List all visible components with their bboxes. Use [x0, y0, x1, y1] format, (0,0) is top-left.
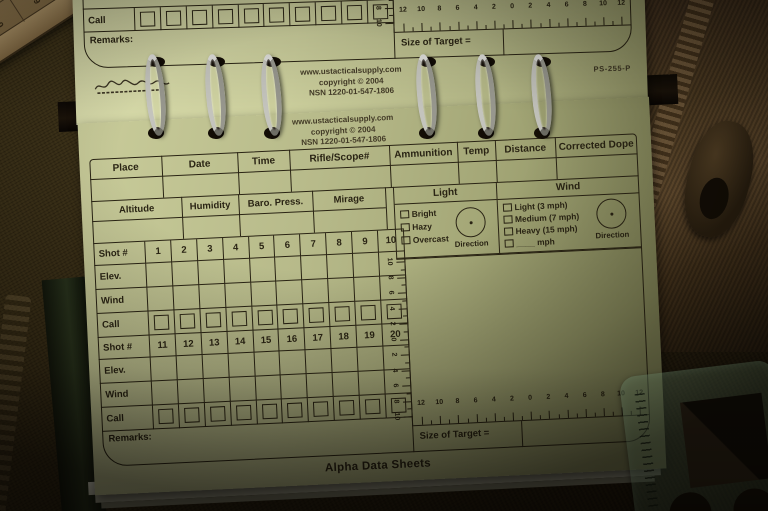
wind-option: ____ mph	[504, 236, 555, 248]
ruler-tick	[613, 411, 614, 416]
ruler-tick	[513, 20, 514, 28]
ruler-tick	[531, 412, 532, 420]
ruler-number: 8	[374, 1, 381, 13]
protractor-template	[619, 359, 768, 511]
shot-number-cell: 14	[227, 331, 254, 354]
light-option: Bright	[400, 208, 437, 220]
ruler-tick	[558, 414, 559, 419]
photo-scene: 92.82.22.02.42.62426283032345.96.47.07.9…	[0, 0, 768, 511]
call-checkbox	[283, 309, 299, 325]
ruler-number: 2	[389, 317, 397, 329]
call-checkbox	[166, 10, 181, 25]
checkbox	[400, 210, 409, 219]
call-checkbox	[140, 11, 155, 26]
call-cell	[226, 307, 253, 332]
call-cell	[212, 5, 239, 29]
shot-number-cell: 4	[223, 237, 250, 260]
part-number: PS-255-P	[545, 63, 631, 75]
call-checkbox	[179, 313, 195, 329]
ruler-tick	[467, 25, 468, 30]
ruler-tick	[440, 22, 441, 30]
ruler-tick	[402, 370, 410, 371]
ruler-number: 4	[558, 393, 574, 401]
ruler-tick	[504, 416, 505, 421]
protractor-window	[680, 393, 768, 488]
ruler-number: 10	[386, 255, 394, 267]
ruler-number: 0	[522, 394, 538, 402]
ruler-number: 12	[413, 399, 429, 407]
shot-entry-cell	[250, 258, 277, 283]
ruler-tick	[389, 15, 394, 16]
shot-number-cell: 13	[201, 332, 228, 355]
shot-row-label: Call	[97, 312, 150, 338]
ruler-tick	[385, 23, 393, 24]
shot-row-label: Elev.	[94, 264, 147, 290]
env-column-label: Humidity	[181, 194, 239, 217]
ruler-tick	[403, 331, 408, 332]
shot-number-cell: 10	[378, 229, 405, 252]
shot-number-cell: 6	[275, 234, 302, 257]
shot-number-cell: 17	[305, 327, 332, 350]
ruler-tick	[431, 420, 432, 425]
ruler-tick	[407, 409, 412, 410]
shot-row-label: Shot #	[98, 336, 151, 360]
shot-entry-cell	[277, 280, 304, 305]
ruler-number: 6	[559, 1, 575, 8]
checkbox	[503, 215, 512, 224]
shot-entry-cell	[172, 261, 199, 286]
call-cell	[264, 3, 291, 27]
ruler-tick	[494, 413, 495, 421]
shot-row-label: Elev.	[99, 357, 152, 383]
call-cell	[252, 305, 279, 330]
call-checkbox	[217, 8, 232, 23]
shot-entry-cell	[178, 379, 205, 404]
ruler-tick	[401, 354, 409, 355]
shot-number-cell: 9	[352, 231, 379, 254]
call-checkbox	[295, 6, 310, 21]
ruler-tick	[595, 412, 596, 417]
shot-entry-cell	[333, 372, 360, 397]
call-cell	[304, 303, 331, 328]
ruler-tick	[513, 412, 514, 420]
direction-circle	[596, 198, 627, 229]
ruler-tick	[405, 378, 410, 379]
ruler-tick	[404, 416, 412, 417]
call-checkbox	[287, 402, 303, 418]
ruler-number: 2	[486, 3, 502, 10]
call-checkbox	[365, 399, 381, 415]
remarks-label: Remarks:	[90, 34, 134, 46]
wind-option-label: Heavy (15 mph)	[515, 223, 577, 236]
ruler-number: 6	[577, 392, 593, 400]
protractor-ruler-ticks	[635, 393, 661, 511]
wind-option-label: ____ mph	[516, 236, 555, 248]
ruler-tick	[613, 20, 614, 25]
shot-entry-cell	[281, 374, 308, 399]
shot-entry-cell	[177, 355, 204, 380]
ruler-number: 4	[468, 4, 484, 11]
protractor-hole	[667, 490, 714, 511]
ruler-tick	[402, 300, 407, 301]
shot-entry-cell	[306, 349, 333, 374]
shot-number-cell: 7	[300, 233, 327, 256]
ruler-number: 10	[393, 410, 401, 422]
call-checkbox	[335, 306, 351, 322]
ruler-number: 6	[391, 379, 399, 391]
size-of-target-label: Size of Target =	[401, 35, 471, 48]
shot-entry-cell	[354, 277, 381, 302]
call-checkbox	[313, 401, 329, 417]
call-cell	[200, 308, 227, 333]
ruler-tick	[531, 20, 532, 28]
light-option-label: Hazy	[412, 221, 432, 232]
shot-entry-cell	[301, 255, 328, 280]
ruler-tick	[404, 347, 409, 348]
ruler-number: 6	[449, 5, 465, 12]
ruler-tick	[595, 21, 596, 26]
shot-entry-cell	[303, 279, 330, 304]
wind-panel: Wind Light (3 mph) Medium (7 mph) Heavy …	[496, 175, 642, 254]
ruler-tick	[494, 21, 495, 29]
shot-entry-cell	[198, 260, 225, 285]
direction-label: Direction	[581, 229, 643, 241]
ruler-number: 0	[504, 3, 520, 10]
ruler-tick	[398, 292, 406, 293]
ruler-number: 2	[540, 393, 556, 401]
light-panel-title: Light	[394, 182, 497, 205]
direction-circle	[455, 207, 486, 238]
ruler-tick	[402, 316, 407, 317]
call-cell	[290, 2, 317, 26]
zipper-pull	[675, 114, 764, 243]
shot-entry-cell	[229, 377, 256, 402]
ruler-tick	[431, 26, 432, 31]
direction-label: Direction	[440, 238, 502, 250]
shot-entry-cell	[358, 347, 385, 372]
light-panel: Light Bright Hazy Overcast Direction	[393, 182, 499, 259]
ruler-tick	[576, 413, 577, 418]
ruler-tick	[549, 19, 550, 27]
ruler-tick	[422, 23, 423, 31]
wind-option-label: Medium (7 mph)	[515, 211, 580, 224]
size-of-target-label: Size of Target =	[419, 428, 489, 442]
call-checkbox	[210, 406, 226, 422]
ruler-number: 12	[395, 6, 411, 13]
ruler-tick	[388, 0, 393, 1]
ruler-number: 12	[613, 0, 629, 7]
call-checkbox	[236, 405, 252, 421]
ruler-tick	[567, 410, 568, 418]
call-cell	[282, 398, 309, 423]
checkbox	[503, 203, 512, 212]
call-cell	[334, 396, 361, 421]
ruler-tick	[576, 22, 577, 27]
ruler-tick	[406, 393, 411, 394]
ruler-tick	[396, 261, 404, 262]
shot-number-cell: 18	[331, 326, 358, 349]
call-checkbox	[361, 305, 377, 321]
ruler-number: 4	[486, 396, 502, 404]
call-cell	[316, 1, 343, 25]
ruler-tick	[540, 415, 541, 420]
shot-entry-cell	[204, 378, 231, 403]
shot-entry-cell	[328, 278, 355, 303]
alpha-data-sheet: www.ustacticalsupply.com copyright © 200…	[78, 97, 667, 496]
ruler-number: 8	[386, 271, 394, 283]
ruler-tick	[603, 17, 604, 25]
ruler-tick	[476, 414, 477, 422]
call-cell	[308, 397, 335, 422]
ruler-tick	[422, 417, 423, 425]
shot-number-cell: 5	[249, 236, 276, 259]
ruler-tick	[399, 308, 407, 309]
call-checkbox	[262, 404, 278, 420]
call-cell	[153, 404, 180, 429]
shot-number-cell: 1	[145, 240, 172, 263]
call-row-label: Call	[83, 8, 136, 33]
shot-entry-cell	[327, 254, 354, 279]
call-checkbox	[257, 310, 273, 326]
ruler-tick	[402, 385, 410, 386]
call-cell	[148, 310, 175, 335]
ruler-tick	[558, 22, 559, 27]
call-cell	[187, 6, 214, 30]
remarks-label: Remarks:	[108, 432, 152, 445]
ruler-tick	[440, 416, 441, 424]
shot-entry-cell	[152, 380, 179, 405]
ruler-tick	[401, 285, 406, 286]
ruler-number: 0	[389, 333, 397, 345]
ruler-tick	[467, 418, 468, 423]
call-checkbox	[309, 307, 325, 323]
ruler-number: 8	[392, 395, 400, 407]
light-option: Hazy	[401, 221, 432, 232]
shot-row-label: Wind	[95, 288, 148, 314]
protractor-hole	[731, 486, 768, 511]
ruler-tick	[567, 18, 568, 26]
call-checkbox	[154, 315, 170, 331]
ruler-number: 8	[577, 1, 593, 8]
shot-table: Shot #12345678910Elev.WindCallShot #1112…	[93, 228, 413, 430]
wind-option-label: Light (3 mph)	[514, 200, 567, 212]
shot-entry-cell	[359, 370, 386, 395]
call-checkbox	[184, 407, 200, 423]
call-cell	[342, 1, 369, 25]
ruler-number: 2	[522, 2, 538, 9]
shot-entry-cell	[254, 351, 281, 376]
shot-entry-cell	[146, 262, 173, 287]
shot-row-label: Wind	[100, 381, 153, 407]
ruler-tick	[449, 26, 450, 31]
checkbox	[504, 239, 513, 248]
call-cell	[238, 4, 265, 28]
call-cell	[231, 401, 258, 426]
ruler-tick	[400, 269, 405, 270]
shot-number-cell: 19	[357, 325, 384, 348]
shot-number-cell: 8	[326, 232, 353, 255]
ruler-tool-number: 7.0	[0, 13, 5, 29]
shot-entry-cell	[307, 373, 334, 398]
ruler-tick	[504, 24, 505, 29]
ruler-tick	[604, 408, 605, 416]
ruler-tick	[397, 277, 405, 278]
call-cell	[278, 304, 305, 329]
ruler-tick	[449, 419, 450, 424]
call-checkbox	[205, 312, 221, 328]
call-cell	[174, 309, 201, 334]
ruler-number: 8	[595, 391, 611, 399]
ruler-tick	[458, 22, 459, 30]
ruler-tick	[522, 23, 523, 28]
ruler-tick	[476, 21, 477, 29]
zipper-pull-hole	[695, 175, 732, 223]
shot-entry-cell	[276, 256, 303, 281]
call-checkbox	[339, 400, 355, 416]
ruler-tick	[486, 417, 487, 422]
shot-number-cell: 16	[279, 328, 306, 351]
shot-entry-cell	[280, 350, 307, 375]
ruler-tick	[622, 17, 623, 25]
call-checkbox	[158, 408, 174, 424]
ruler-number: 8	[449, 398, 465, 406]
shot-entry-cell	[255, 375, 282, 400]
ruler-tick	[549, 411, 550, 419]
size-of-target-box: Size of Target =	[413, 421, 523, 452]
call-checkbox	[243, 8, 258, 23]
call-checkbox	[231, 311, 247, 327]
ruler-tick	[540, 23, 541, 28]
ruler-tick	[458, 415, 459, 423]
shot-row-label: Shot #	[93, 242, 146, 266]
wind-option: Light (3 mph)	[503, 200, 568, 213]
shot-entry-cell	[199, 284, 226, 309]
ruler-tick	[403, 24, 404, 32]
ruler-tick	[522, 416, 523, 421]
shot-entry-cell	[332, 348, 359, 373]
ruler-number: 6	[467, 397, 483, 405]
ruler-number: 4	[540, 2, 556, 9]
call-cell	[161, 6, 188, 30]
signature-logo	[91, 74, 184, 104]
ruler-number: 10	[413, 6, 429, 13]
shot-number-cell: 12	[175, 333, 202, 356]
light-option-label: Bright	[411, 208, 436, 219]
info-column-label: Temp	[457, 140, 496, 162]
shot-entry-cell	[202, 354, 229, 379]
shot-number-cell: 3	[197, 238, 224, 261]
call-cell	[179, 403, 206, 428]
shot-entry-cell	[228, 353, 255, 378]
call-cell	[256, 399, 283, 424]
shot-entry-cell	[147, 286, 174, 311]
call-checkbox	[269, 7, 284, 22]
checkbox	[504, 227, 513, 236]
shot-entry-cell	[173, 285, 200, 310]
wind-option: Heavy (15 mph)	[504, 223, 578, 236]
call-cell	[360, 394, 387, 419]
ruler-number: 10	[431, 399, 447, 407]
shot-entry-cell	[353, 253, 380, 278]
shot-number-cell: 2	[171, 239, 198, 262]
shot-entry-cell	[251, 281, 278, 306]
ruler-number: 4	[388, 302, 396, 314]
shot-number-cell: 15	[253, 329, 280, 352]
ruler-tick	[405, 362, 410, 363]
call-checkbox	[321, 5, 336, 20]
ruler-tick	[399, 323, 407, 324]
call-cell	[135, 7, 162, 31]
ruler-number: 2	[504, 395, 520, 403]
ruler-number: 4	[391, 364, 399, 376]
call-cell	[205, 402, 232, 427]
call-checkbox	[192, 9, 207, 24]
shot-entry-cell	[225, 283, 252, 308]
ruler-tick	[585, 18, 586, 26]
ruler-tick	[413, 27, 414, 32]
shot-number-cell: 11	[150, 334, 177, 357]
ruler-tool-number: 7.9	[27, 0, 42, 5]
shot-entry-cell	[151, 356, 178, 381]
call-checkbox	[347, 4, 362, 19]
shot-entry-cell	[224, 259, 251, 284]
ruler-tick	[400, 339, 408, 340]
ruler-number: 6	[387, 286, 395, 298]
ruler-number: 8	[431, 5, 447, 12]
ruler-tick	[385, 7, 393, 8]
call-cell	[355, 301, 382, 326]
zipper-panel	[644, 0, 768, 352]
info-column-label: Time	[237, 150, 290, 172]
size-of-target-box: Size of Target =	[395, 29, 505, 58]
ruler-tick	[403, 401, 411, 402]
ruler-number: 10	[595, 0, 611, 7]
ruler-tick	[585, 409, 586, 417]
ruler-number: 2	[390, 348, 398, 360]
ruler-number: 10	[375, 17, 382, 29]
call-cell	[330, 302, 357, 327]
ruler-tick	[485, 24, 486, 29]
